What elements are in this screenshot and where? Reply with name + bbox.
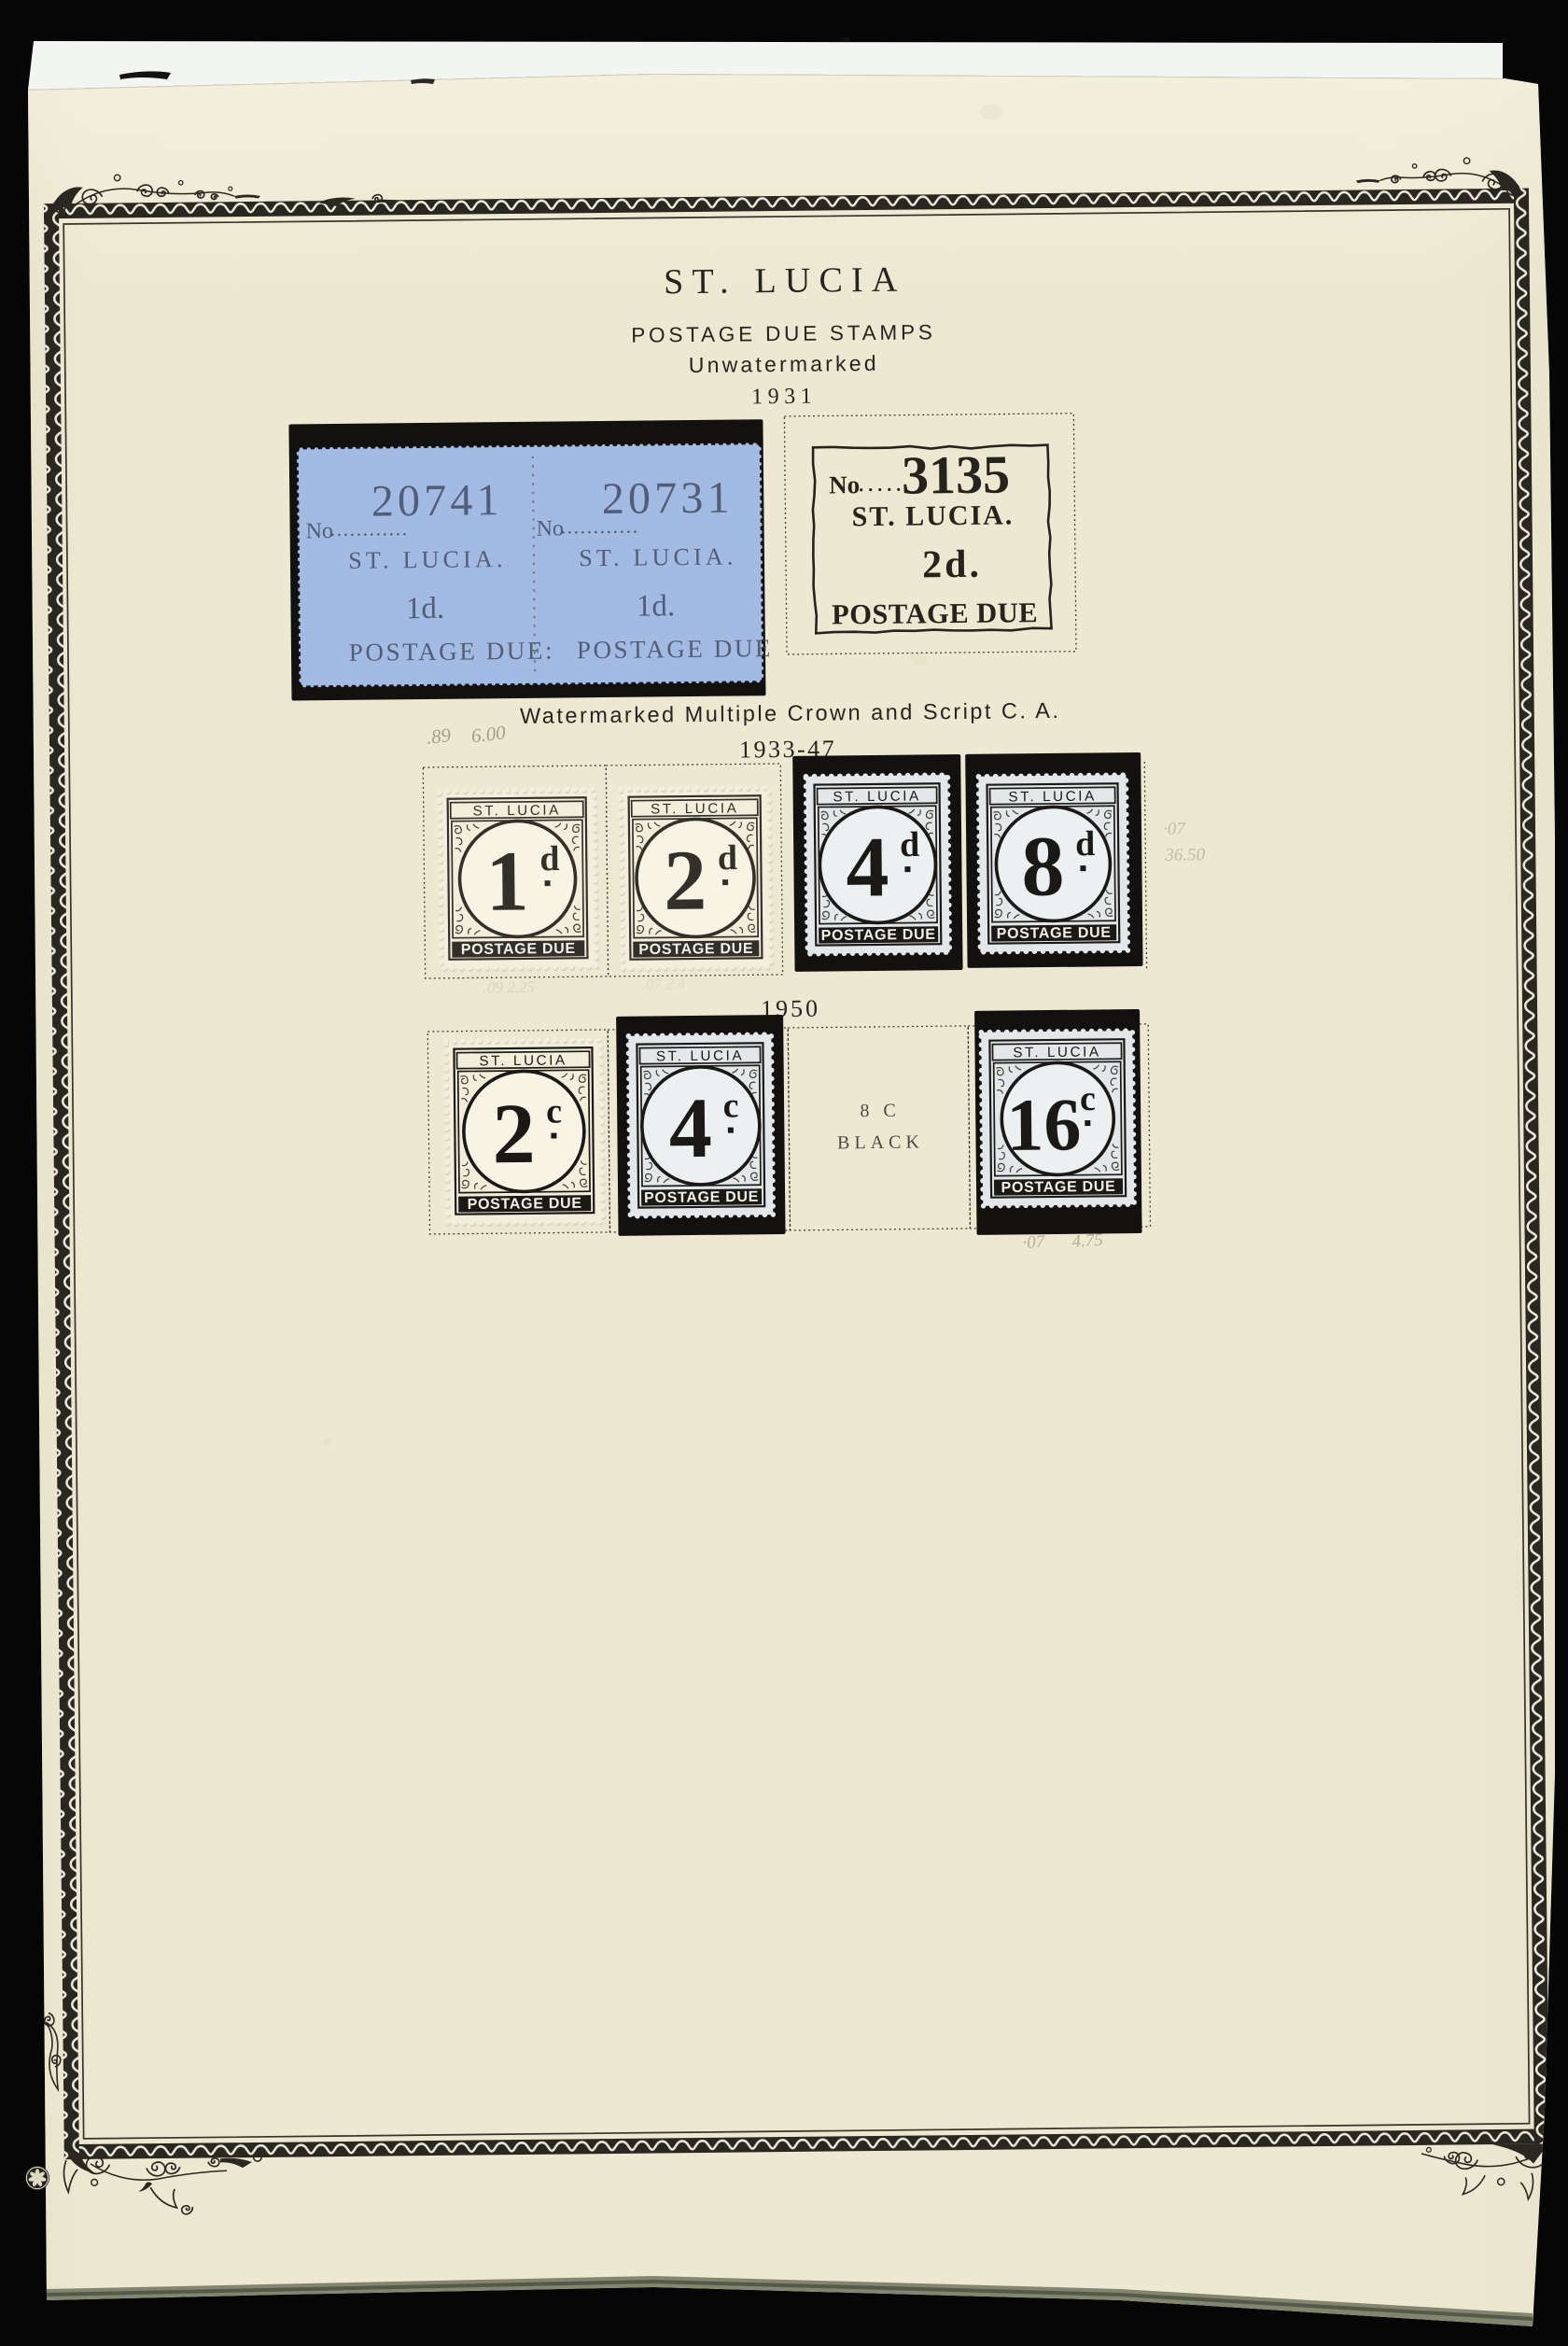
svg-text:POSTAGE DUE: POSTAGE DUE (461, 941, 576, 958)
svg-text:POSTAGE DUE: POSTAGE DUE (832, 597, 1038, 630)
svg-text:POSTAGE DUE: POSTAGE DUE (638, 941, 753, 958)
svg-text:ST. LUCIA: ST. LUCIA (651, 800, 738, 817)
svg-text:Unwatermarked: Unwatermarked (689, 351, 879, 377)
svg-text:2d.: 2d. (922, 543, 982, 587)
svg-text:.07 2.4: .07 2.4 (642, 975, 686, 992)
svg-text:8 C: 8 C (860, 1101, 901, 1121)
svg-text:No: No (829, 471, 860, 499)
svg-text:ST. LUCIA: ST. LUCIA (664, 260, 906, 302)
svg-text:POSTAGE DUE:: POSTAGE DUE: (349, 637, 555, 667)
svg-text:d: d (718, 838, 738, 878)
svg-text:20741: 20741 (371, 475, 504, 526)
svg-text:8: 8 (1021, 818, 1065, 913)
svg-text:c: c (546, 1091, 562, 1131)
svg-text:c: c (722, 1087, 738, 1126)
svg-text:POSTAGE DUE STAMPS: POSTAGE DUE STAMPS (631, 320, 936, 346)
svg-text:POSTAGE DUE: POSTAGE DUE (468, 1196, 582, 1213)
svg-text:c: c (1080, 1079, 1096, 1118)
svg-text:1d.: 1d. (406, 592, 445, 625)
svg-text:4: 4 (668, 1080, 712, 1175)
svg-text:ST. LUCIA.: ST. LUCIA. (579, 542, 737, 571)
svg-text:ST. LUCIA: ST. LUCIA (1008, 788, 1096, 805)
svg-text:36.50: 36.50 (1164, 845, 1205, 864)
svg-text:16: 16 (1006, 1084, 1082, 1167)
svg-text:4: 4 (846, 819, 889, 914)
svg-text:3135: 3135 (902, 443, 1011, 505)
svg-text:ST. LUCIA.: ST. LUCIA. (348, 545, 507, 574)
svg-text:d: d (1075, 824, 1096, 864)
svg-text:POSTAGE DUE: POSTAGE DUE (577, 634, 774, 664)
svg-text:. . . . .: . . . . . (859, 475, 901, 496)
svg-text:·07: ·07 (1022, 1232, 1047, 1254)
svg-text:ST. LUCIA: ST. LUCIA (473, 802, 561, 819)
svg-text:1: 1 (485, 833, 529, 928)
svg-text:4.75: 4.75 (1071, 1230, 1104, 1252)
svg-text:1d.: 1d. (637, 589, 676, 623)
svg-text:POSTAGE DUE: POSTAGE DUE (1001, 1179, 1115, 1196)
svg-text:ST. LUCIA: ST. LUCIA (656, 1047, 744, 1064)
svg-text:1931: 1931 (751, 385, 817, 410)
svg-text:POSTAGE DUE: POSTAGE DUE (997, 925, 1112, 942)
svg-text:.89: .89 (425, 723, 452, 749)
svg-text:ST. LUCIA: ST. LUCIA (479, 1052, 567, 1069)
svg-text:BLACK: BLACK (837, 1131, 924, 1153)
svg-text:2: 2 (664, 832, 707, 927)
svg-text:.09 2.25: .09 2.25 (483, 978, 535, 997)
svg-text:POSTAGE DUE: POSTAGE DUE (821, 927, 936, 944)
svg-text:d: d (539, 839, 560, 878)
svg-text:d: d (900, 825, 920, 864)
svg-text:·07: ·07 (1163, 819, 1186, 838)
svg-text:ST. LUCIA.: ST. LUCIA. (852, 499, 1015, 532)
svg-text:6.00: 6.00 (470, 721, 508, 747)
svg-text:ST. LUCIA: ST. LUCIA (833, 788, 920, 805)
svg-text:ST. LUCIA: ST. LUCIA (1013, 1044, 1100, 1061)
svg-text:POSTAGE DUE: POSTAGE DUE (644, 1189, 759, 1206)
svg-text:20731: 20731 (602, 473, 735, 524)
svg-text:2: 2 (492, 1086, 536, 1181)
